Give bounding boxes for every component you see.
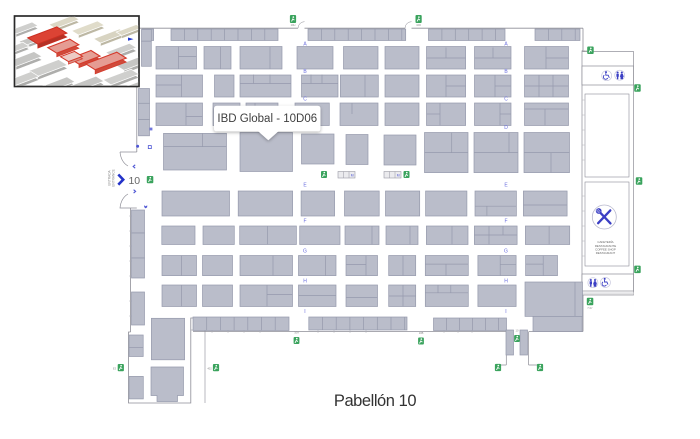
svg-text:G: G: [504, 249, 508, 255]
svg-text:10D: 10D: [416, 23, 421, 27]
svg-text:C: C: [504, 97, 508, 103]
svg-text:10A: 10A: [294, 331, 299, 335]
svg-text:RESTAURANT: RESTAURANT: [596, 251, 616, 255]
svg-text:C: C: [303, 97, 307, 103]
svg-text:10H: 10H: [291, 23, 296, 27]
svg-text:F: F: [303, 219, 306, 225]
svg-text:H: H: [303, 278, 307, 284]
svg-text:I: I: [304, 309, 305, 315]
svg-text:10: 10: [128, 175, 140, 187]
svg-text:M: M: [351, 174, 354, 178]
svg-text:10B: 10B: [419, 331, 424, 335]
svg-text:H: H: [504, 278, 508, 284]
svg-text:F: F: [504, 219, 507, 225]
svg-text:D: D: [504, 125, 508, 131]
svg-text:M: M: [397, 174, 400, 178]
svg-text:7.03: 7.03: [581, 49, 587, 53]
svg-text:Pabellón 10: Pabellón 10: [334, 392, 416, 410]
svg-text:E3: E3: [113, 367, 117, 371]
svg-text:G: G: [303, 249, 307, 255]
svg-text:ENTRANCE: ENTRANCE: [112, 169, 116, 187]
svg-text:402: 402: [207, 367, 212, 371]
svg-text:IBD Global - 10D06: IBD Global - 10D06: [217, 113, 317, 125]
svg-text:I: I: [505, 309, 506, 315]
